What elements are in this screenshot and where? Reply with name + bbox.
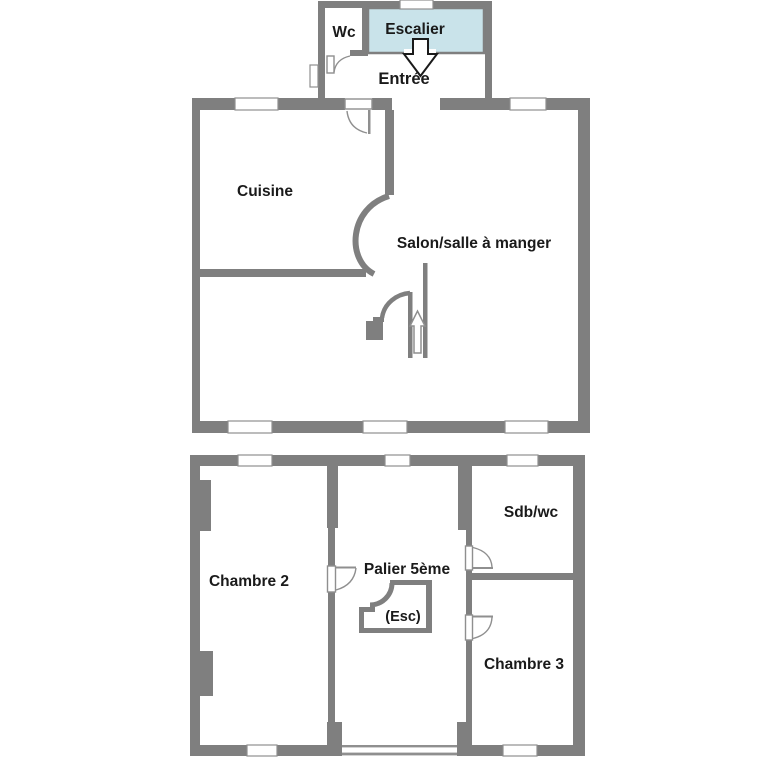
- window: [400, 0, 433, 9]
- room-label-wc: Wc: [332, 24, 356, 41]
- wall-segment: [410, 455, 507, 466]
- door-arc-chambre2: [336, 568, 356, 590]
- floor-plan-canvas: Wc Escalier Entrée Cuisine Salon/salle à…: [0, 0, 777, 766]
- wall-segment: [466, 530, 472, 546]
- door-open-leaf: [472, 616, 493, 618]
- long-window-palier: [342, 745, 457, 756]
- window: [310, 65, 318, 87]
- window: [510, 98, 546, 110]
- door-leaf-wc: [327, 56, 334, 73]
- room-label-salon: Salon/salle à manger: [397, 235, 551, 252]
- stair-pillar: [366, 321, 383, 340]
- door-leaf-cuisine: [345, 99, 372, 109]
- wall-segment: [548, 421, 590, 433]
- window: [228, 421, 272, 433]
- wall-segment: [485, 1, 492, 98]
- wall-segment: [573, 455, 585, 756]
- wall-segment: [372, 98, 392, 110]
- chimney-breast: [198, 480, 211, 531]
- esc-enclosure-step: [359, 607, 375, 612]
- esc-enclosure-curve: [370, 583, 392, 605]
- wall-segment: [407, 421, 505, 433]
- window: [507, 455, 538, 466]
- wall-segment: [578, 98, 590, 433]
- window: [238, 455, 272, 466]
- window: [385, 455, 410, 466]
- room-label-cuisine: Cuisine: [237, 183, 293, 200]
- window: [235, 98, 278, 110]
- door-open-leaf: [335, 567, 356, 569]
- esc-enclosure-top: [390, 580, 432, 585]
- wall-segment: [466, 570, 472, 615]
- room-label-entree: Entrée: [378, 70, 429, 88]
- room-label-palier: Palier 5ème: [364, 561, 451, 578]
- door-arc-chambre3: [473, 618, 492, 639]
- wall-segment: [272, 421, 363, 433]
- window: [247, 745, 277, 756]
- walls: [190, 1, 590, 756]
- wall-segment: [192, 98, 200, 433]
- door-open-leaf: [368, 110, 371, 134]
- stair-curve: [382, 293, 410, 318]
- chimney-breast: [200, 651, 213, 696]
- door-leaf-sdb: [466, 546, 473, 570]
- wall-sdb-divider: [472, 573, 573, 580]
- wall-segment: [327, 465, 338, 528]
- wall-segment: [327, 722, 342, 756]
- window-frame-line: [342, 753, 457, 756]
- wall-segment: [537, 745, 585, 756]
- wall-segment: [190, 745, 247, 756]
- door-leaf-chambre2: [328, 566, 336, 592]
- wall-cuisine-bottom: [200, 269, 366, 277]
- door-arc-sdb: [473, 548, 492, 568]
- wall-segment: [278, 98, 345, 110]
- window: [363, 421, 407, 433]
- esc-enclosure-bottom: [359, 628, 432, 633]
- wall-segment-wc-bottom: [350, 50, 362, 56]
- wall-segment: [458, 465, 472, 530]
- room-label-chambre3: Chambre 3: [484, 656, 564, 673]
- esc-enclosure-right: [426, 580, 432, 633]
- wall-segment: [328, 592, 335, 722]
- room-label-sdb: Sdb/wc: [504, 504, 559, 521]
- wall-segment: [457, 722, 472, 756]
- wall-segment: [466, 640, 472, 722]
- room-label-chambre2: Chambre 2: [209, 573, 289, 590]
- window: [505, 421, 548, 433]
- window-frame-line: [342, 745, 457, 747]
- wall-curved-passage: [356, 196, 389, 274]
- wall-segment: [192, 421, 228, 433]
- wall-segment: [328, 528, 335, 566]
- window: [503, 745, 537, 756]
- stair-rail-right: [423, 263, 428, 358]
- floor-plan-drawing: Wc Escalier Entrée Cuisine Salon/salle à…: [0, 0, 777, 766]
- wall-segment: [440, 98, 510, 110]
- door-leaf-chambre3: [466, 615, 473, 640]
- wall-cuisine-divider: [385, 110, 394, 195]
- room-label-escalier: Escalier: [385, 21, 444, 38]
- wall-segment: [318, 1, 325, 98]
- door-arc-cuisine: [347, 111, 367, 133]
- wall-segment: [272, 455, 385, 466]
- wall-segment: [472, 745, 503, 756]
- room-label-esc: (Esc): [385, 609, 421, 625]
- door-open-leaf: [472, 567, 493, 569]
- door-arc-wc: [334, 56, 350, 72]
